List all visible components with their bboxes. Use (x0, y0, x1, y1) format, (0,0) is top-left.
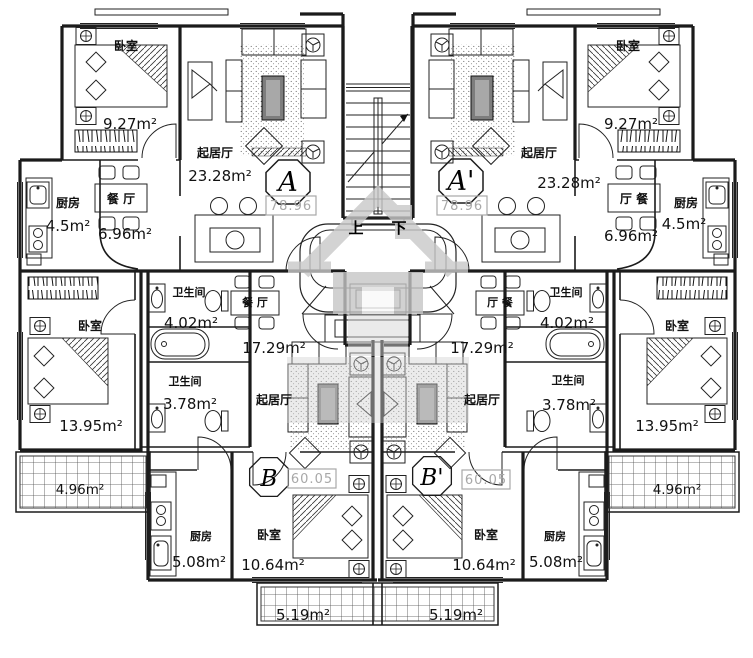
room-label-living-a-left: 起居厅 (196, 145, 233, 160)
room-area-bath-small-b-left: 3.78m² (163, 395, 217, 413)
room-area-dining-b-left: 17.29m² (242, 339, 306, 357)
room-label-dining-b-left: 餐 厅 (241, 295, 268, 309)
room-area-living-a-right: 23.28m² (537, 174, 601, 192)
unit-total-b-right: 60.05 (465, 473, 507, 488)
room-label-bedroom-b-right: 卧室 (474, 527, 498, 542)
unit-tag-b-mirrored: B' (419, 465, 443, 491)
area-balcony-side-right: 4.96m² (653, 482, 702, 498)
room-label-kitchen-b-left: 厨房 (190, 529, 212, 543)
room-label-living-b-right: 起居厅 (463, 392, 500, 407)
floor-plan-canvas: 卧室 9.27m² 起居厅 23.28m² 厨房 4.5m² 餐 厅 6.96m… (0, 0, 753, 658)
room-area-kitchen-b-right: 5.08m² (529, 553, 583, 571)
room-area-living-a-left: 23.28m² (188, 167, 252, 185)
room-label-kitchen-b-right: 厨房 (544, 529, 566, 543)
room-label-bedroom-b-left: 卧室 (257, 527, 281, 542)
room-area-kitchen-a-right: 4.5m² (662, 215, 706, 233)
unit-tag-a: A (275, 167, 298, 198)
unit-total-b-left: 60.05 (291, 472, 333, 487)
room-label-dining-a-right: 厅 餐 (620, 191, 649, 206)
unit-total-a-left: 78.96 (270, 199, 312, 214)
unit-tag-b: B (260, 466, 278, 492)
room-area-bedroom-b-left: 10.64m² (241, 556, 305, 574)
room-area-bedroom-side-right: 13.95m² (635, 417, 699, 435)
area-balcony-bottom-left: 5.19m² (276, 606, 330, 624)
room-label-bedroom-side-right: 卧室 (665, 318, 689, 333)
unit-total-a-right: 78.96 (441, 199, 483, 214)
room-label-bedroom-a-left: 卧室 (114, 38, 138, 53)
room-area-dining-b-right: 17.29m² (450, 339, 514, 357)
room-label-bedroom-side-left: 卧室 (78, 318, 102, 333)
room-area-dining-a-left: 6.96m² (98, 225, 152, 243)
room-area-bedroom-a-right: 9.27m² (604, 115, 658, 133)
room-label-kitchen-a-right: 厨房 (674, 195, 698, 210)
room-area-bath-small-b-right: 3.78m² (542, 396, 596, 414)
room-label-living-a-right: 起居厅 (520, 145, 557, 160)
room-area-kitchen-a-left: 4.5m² (46, 217, 90, 235)
room-label-bath-small-b-right: 卫生间 (552, 373, 585, 387)
room-label-dining-b-right: 厅 餐 (487, 295, 514, 309)
room-area-bath-main-b-left: 4.02m² (164, 314, 218, 332)
room-area-bedroom-b-right: 10.64m² (452, 556, 516, 574)
stair-down-label: 下 (391, 219, 406, 237)
room-area-dining-a-right: 6.96m² (604, 227, 658, 245)
room-label-bath-small-b-left: 卫生间 (169, 374, 202, 388)
room-label-living-b-left: 起居厅 (255, 392, 292, 407)
room-label-bath-main-b-right: 卫生间 (550, 285, 583, 299)
area-balcony-side-left: 4.96m² (56, 482, 105, 498)
room-label-bedroom-a-right: 卧室 (616, 38, 640, 53)
watermark-text-band (287, 357, 469, 423)
room-label-bath-main-b-left: 卫生间 (173, 285, 206, 299)
unit-tag-a-mirrored: A' (445, 166, 475, 197)
room-area-bath-main-b-right: 4.02m² (540, 314, 594, 332)
floor-plan-drawing: 卧室 9.27m² 起居厅 23.28m² 厨房 4.5m² 餐 厅 6.96m… (0, 0, 753, 658)
room-label-kitchen-a-left: 厨房 (56, 195, 80, 210)
room-label-dining-a-left: 餐 厅 (107, 191, 135, 206)
room-area-kitchen-b-left: 5.08m² (172, 553, 226, 571)
room-area-bedroom-a-left: 9.27m² (103, 115, 157, 133)
area-balcony-bottom-right: 5.19m² (429, 606, 483, 624)
stair-up-label: 上 (348, 219, 363, 237)
room-area-bedroom-side-left: 13.95m² (59, 417, 123, 435)
